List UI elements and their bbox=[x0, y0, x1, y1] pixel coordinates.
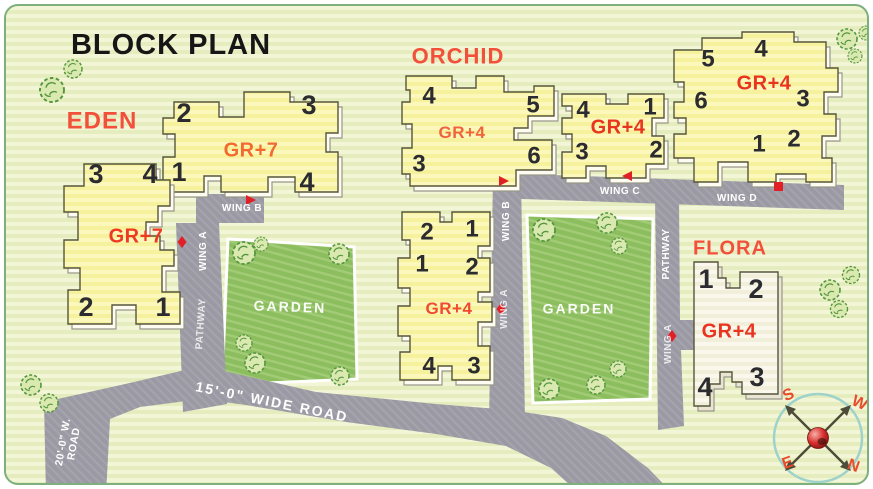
unit-number: 3 bbox=[412, 151, 425, 176]
unit-number: 2 bbox=[748, 275, 763, 303]
road-label-wing-a: WING A bbox=[500, 289, 511, 329]
garden-label: GARDEN bbox=[253, 298, 326, 315]
tree-icon bbox=[233, 242, 255, 264]
floors-label-flora: GR+4 bbox=[702, 322, 757, 343]
road-label-wing-d: WING D bbox=[717, 194, 757, 205]
unit-number: 2 bbox=[78, 293, 93, 321]
plan-frame: BLOCK PLAN EDEN ORCHID FLORA GR+7 GR+7 G… bbox=[4, 4, 869, 485]
unit-number: 2 bbox=[787, 126, 800, 151]
road-label-pathway: PATHWAY bbox=[662, 228, 673, 279]
unit-number: 5 bbox=[701, 46, 714, 71]
unit-number: 4 bbox=[299, 168, 314, 196]
tree-icon bbox=[64, 60, 82, 78]
unit-number: 5 bbox=[526, 92, 539, 117]
unit-number: 3 bbox=[749, 363, 764, 391]
unit-number: 3 bbox=[575, 139, 588, 164]
unit-number: 2 bbox=[649, 137, 662, 162]
garden-label: GARDEN bbox=[543, 302, 616, 317]
unit-number: 4 bbox=[576, 97, 589, 122]
floors-label-orchid-b: GR+4 bbox=[591, 118, 646, 139]
unit-number: 2 bbox=[176, 99, 191, 127]
floors-label-orchid-d: GR+4 bbox=[426, 300, 473, 318]
page-title: BLOCK PLAN bbox=[71, 30, 271, 60]
tree-icon bbox=[587, 376, 605, 394]
unit-number: 1 bbox=[155, 293, 170, 321]
tree-icon bbox=[21, 375, 41, 395]
floors-label-eden-upper: GR+7 bbox=[224, 141, 279, 162]
tree-icon bbox=[40, 394, 58, 412]
tree-icon bbox=[539, 379, 559, 399]
unit-number: 4 bbox=[422, 353, 435, 378]
square-marker-icon bbox=[774, 182, 783, 191]
unit-number: 2 bbox=[465, 254, 478, 279]
tree-icon bbox=[843, 267, 860, 284]
tree-icon bbox=[859, 26, 869, 40]
unit-number: 6 bbox=[694, 88, 707, 113]
floors-label-orchid-a: GR+4 bbox=[439, 124, 486, 142]
block-name-orchid: ORCHID bbox=[412, 44, 505, 67]
tree-icon bbox=[331, 367, 349, 385]
tree-icon bbox=[837, 29, 857, 49]
road-label-wing-a: WING A bbox=[199, 231, 210, 271]
tree-icon bbox=[831, 301, 848, 318]
unit-number: 4 bbox=[754, 36, 767, 61]
tree-icon bbox=[245, 353, 265, 373]
unit-number: 3 bbox=[88, 160, 103, 188]
unit-number: 1 bbox=[415, 251, 428, 276]
unit-number: 4 bbox=[422, 83, 435, 108]
unit-number: 4 bbox=[142, 160, 157, 188]
unit-number: 2 bbox=[420, 219, 433, 244]
floors-label-orchid-c: GR+4 bbox=[737, 74, 792, 95]
tree-icon bbox=[820, 280, 840, 300]
road-label-wing-b: WING B bbox=[502, 201, 513, 241]
tree-icon bbox=[533, 219, 555, 241]
unit-number: 1 bbox=[698, 265, 713, 293]
tree-icon bbox=[40, 78, 64, 102]
road-label-wing-b: WING B bbox=[222, 204, 262, 215]
unit-number: 3 bbox=[467, 353, 480, 378]
tree-icon bbox=[329, 244, 349, 264]
unit-number: 1 bbox=[465, 216, 478, 241]
floors-label-eden-lower: GR+7 bbox=[109, 227, 164, 248]
unit-number: 3 bbox=[301, 91, 316, 119]
road-label-wing-a: WING A bbox=[664, 324, 675, 364]
unit-number: 3 bbox=[796, 86, 809, 111]
unit-number: 4 bbox=[697, 373, 712, 401]
unit-number: 1 bbox=[752, 131, 765, 156]
unit-number: 1 bbox=[171, 158, 186, 186]
tree-icon bbox=[597, 213, 617, 233]
tree-icon bbox=[611, 238, 627, 254]
unit-number: 6 bbox=[527, 143, 540, 168]
block-plan-page: BLOCK PLAN EDEN ORCHID FLORA GR+7 GR+7 G… bbox=[0, 0, 873, 489]
tree-icon bbox=[848, 49, 862, 63]
unit-number: 1 bbox=[643, 94, 656, 119]
block-name-flora: FLORA bbox=[693, 239, 767, 260]
tree-icon bbox=[236, 335, 252, 351]
tree-icon bbox=[254, 237, 268, 251]
block-name-eden: EDEN bbox=[67, 108, 138, 133]
tree-icon bbox=[610, 361, 626, 377]
road-label-wing-c: WING C bbox=[600, 187, 640, 198]
